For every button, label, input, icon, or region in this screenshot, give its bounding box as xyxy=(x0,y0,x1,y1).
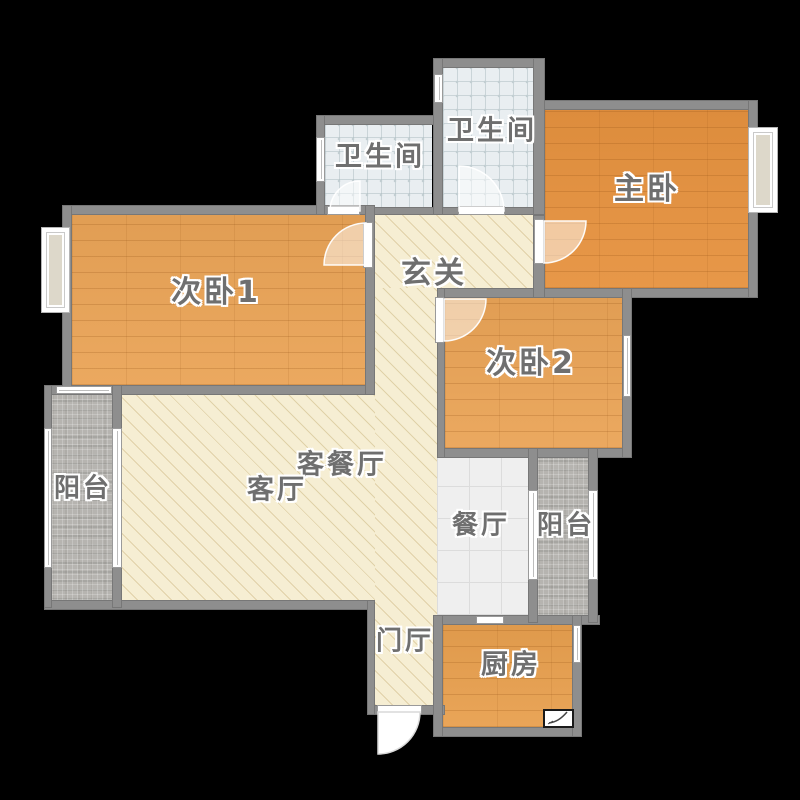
window-kitchen-icon xyxy=(573,625,581,663)
label-bedroom-1: 次卧1 xyxy=(171,267,261,311)
label-living-dining-room: 客餐厅 xyxy=(297,443,387,482)
label-bathroom-1: 卫生间 xyxy=(335,135,425,174)
floorplan-canvas: 卫生间 卫生间 主卧 次卧1 玄关 次卧2 客餐厅 客厅 阳台 餐厅 阳台 门厅… xyxy=(0,0,800,800)
label-bedroom-2: 次卧2 xyxy=(486,338,576,382)
bay-window-master-glass xyxy=(754,133,772,207)
window-bedroom2-icon xyxy=(623,335,631,397)
label-dining-room: 餐厅 xyxy=(452,505,510,542)
wall-living-bottom xyxy=(44,600,375,610)
label-balcony-right: 阳台 xyxy=(537,505,595,542)
door-sliding-kitchen-icon xyxy=(476,616,504,624)
door-leaf-bathroom1-icon xyxy=(327,206,360,215)
wall-foyer-left xyxy=(367,600,375,715)
label-foyer: 门厅 xyxy=(376,621,434,658)
door-leaf-entrance-icon xyxy=(377,705,422,714)
label-balcony-left: 阳台 xyxy=(54,468,112,505)
window-bathroom2-icon xyxy=(434,74,443,103)
bay-window-bedroom1-glass xyxy=(47,233,64,307)
label-bathroom-2: 卫生间 xyxy=(447,109,537,148)
bay-window-master-icon xyxy=(749,128,777,212)
window-bedroom1-balcony-icon xyxy=(56,386,112,394)
window-balcony-living-icon xyxy=(112,428,122,568)
door-arc-entrance-icon xyxy=(378,712,420,754)
door-leaf-master-icon xyxy=(534,219,544,264)
window-bathroom1-icon xyxy=(316,137,325,182)
label-entrance-hall: 玄关 xyxy=(401,248,467,292)
door-leaf-bedroom2-icon xyxy=(435,297,444,343)
window-balcony-left-outer-icon xyxy=(44,428,52,568)
wall-kitchen-bottom xyxy=(433,727,582,737)
wall-kitchen-left xyxy=(433,615,443,737)
door-leaf-bedroom1-icon xyxy=(363,222,373,268)
label-living-room: 客厅 xyxy=(247,468,307,507)
door-leaf-bathroom2-icon xyxy=(458,206,505,215)
bay-window-bedroom1-icon xyxy=(42,228,69,312)
wall-bathroom2-top xyxy=(433,58,545,68)
label-kitchen: 厨房 xyxy=(481,643,541,682)
label-master-bedroom: 主卧 xyxy=(614,164,680,208)
wall-bathroom1-top xyxy=(316,115,443,125)
wall-master-top xyxy=(537,100,758,110)
